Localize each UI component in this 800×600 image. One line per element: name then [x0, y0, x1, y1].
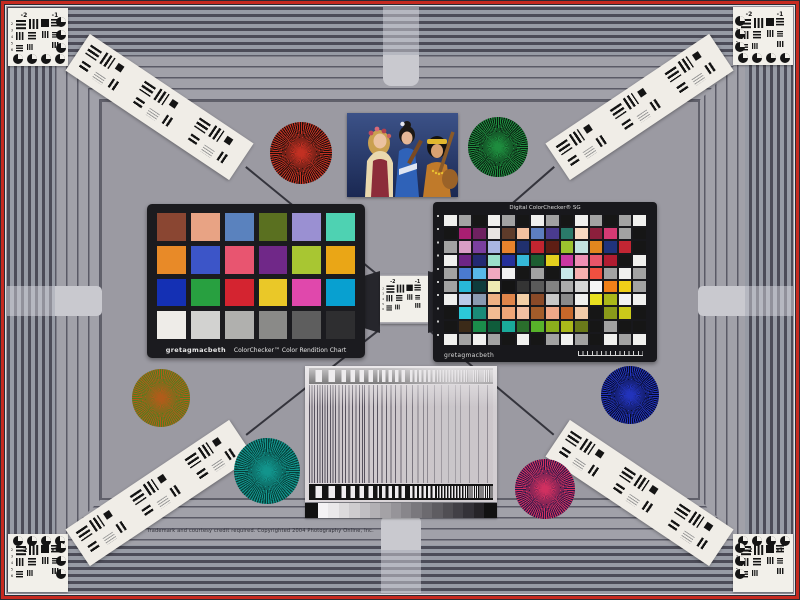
wedge-step	[484, 503, 497, 518]
wedge-step	[380, 503, 390, 518]
color-patch	[619, 215, 632, 226]
color-patch	[459, 307, 472, 318]
color-patch	[604, 334, 617, 345]
color-patch	[546, 321, 559, 332]
color-patch	[444, 215, 457, 226]
color-patch	[444, 255, 457, 266]
color-patch	[561, 268, 574, 279]
wedge-step	[339, 503, 349, 518]
siemens-star-magenta	[515, 459, 575, 519]
color-patch	[326, 246, 355, 274]
color-patch	[502, 281, 515, 292]
color-patch	[502, 241, 515, 252]
wedge-step	[349, 503, 359, 518]
alignment-tab-bottom	[381, 516, 421, 550]
color-patch	[619, 281, 632, 292]
color-patch	[546, 334, 559, 345]
color-patch	[292, 311, 321, 339]
color-patch	[531, 307, 544, 318]
color-patch	[191, 213, 220, 241]
color-patch	[517, 268, 530, 279]
colorchecker-classic-chart: gretagmacbethColorChecker™ Color Renditi…	[147, 204, 365, 358]
siemens-star-olive	[132, 369, 190, 427]
color-patch	[459, 268, 472, 279]
color-patch	[225, 279, 254, 307]
color-patch	[444, 281, 457, 292]
color-patch	[531, 268, 544, 279]
color-patch	[502, 255, 515, 266]
colorchecker-sg-brand: gretagmacbeth	[444, 352, 494, 359]
svg-text:6: 6	[382, 307, 384, 311]
svg-text:5: 5	[11, 42, 13, 46]
wedge-step	[432, 503, 442, 518]
svg-text:6: 6	[11, 48, 13, 52]
color-patch	[619, 241, 632, 252]
wedge-step	[318, 503, 328, 518]
svg-text:-1: -1	[777, 11, 784, 18]
wedge-step	[328, 503, 338, 518]
wedge-step	[474, 503, 484, 518]
wedge-step	[401, 503, 411, 518]
center-resolution-target: -2-123456	[380, 274, 428, 324]
color-patch	[531, 294, 544, 305]
color-patch	[590, 294, 603, 305]
color-patch	[633, 255, 646, 266]
color-patch	[517, 228, 530, 239]
color-patch	[225, 246, 254, 274]
color-patch	[561, 241, 574, 252]
color-patch	[619, 268, 632, 279]
color-patch	[590, 268, 603, 279]
svg-text:2: 2	[382, 286, 384, 290]
color-patch	[225, 311, 254, 339]
alignment-tab-top	[383, 55, 419, 86]
colorchecker-sg-title: Digital ColorChecker® SG	[433, 205, 657, 211]
color-patch	[575, 294, 588, 305]
color-patch	[633, 228, 646, 239]
wedge-step	[463, 503, 473, 518]
color-patch	[590, 241, 603, 252]
color-patch	[604, 255, 617, 266]
color-patch	[575, 334, 588, 345]
color-patch	[546, 294, 559, 305]
svg-text:5: 5	[382, 302, 384, 306]
svg-text:-1: -1	[52, 12, 59, 19]
color-patch	[590, 215, 603, 226]
color-patch	[546, 241, 559, 252]
color-patch	[473, 281, 486, 292]
color-patch	[259, 279, 288, 307]
studio-portrait-photo	[347, 113, 458, 197]
color-patch	[473, 215, 486, 226]
test-chart-stage: -2-123456 -2-123456 -2-123456 -2-123456	[0, 0, 800, 600]
registration-card-bottom-right: -2-123456	[733, 534, 793, 592]
color-patch	[517, 294, 530, 305]
color-patch	[575, 268, 588, 279]
color-patch	[531, 321, 544, 332]
wedge-step	[411, 503, 421, 518]
alignment-tab-right	[698, 286, 745, 316]
color-patch	[459, 215, 472, 226]
svg-text:2: 2	[11, 548, 13, 552]
color-patch	[157, 279, 186, 307]
color-patch	[619, 307, 632, 318]
color-patch	[575, 228, 588, 239]
registration-card-bottom-left: -2-123456	[8, 534, 68, 592]
alignment-tab-left-ghost	[7, 286, 57, 316]
wedge-step	[453, 503, 463, 518]
color-patch	[590, 255, 603, 266]
color-patch	[604, 307, 617, 318]
sweep-bars-bottom	[309, 484, 493, 500]
colorchecker-sg-grid	[444, 215, 646, 345]
colorchecker-classic-grid	[157, 213, 355, 339]
color-patch	[575, 307, 588, 318]
color-patch	[502, 321, 515, 332]
colorchecker-classic-label: gretagmacbethColorChecker™ Color Renditi…	[147, 346, 365, 354]
color-patch	[575, 321, 588, 332]
color-patch	[633, 307, 646, 318]
color-patch	[590, 307, 603, 318]
color-patch	[604, 215, 617, 226]
color-patch	[561, 215, 574, 226]
svg-text:6: 6	[11, 574, 13, 578]
color-patch	[488, 228, 501, 239]
color-patch	[191, 311, 220, 339]
siemens-star-blue	[601, 366, 659, 424]
color-patch	[473, 334, 486, 345]
color-patch	[633, 321, 646, 332]
color-patch	[473, 255, 486, 266]
color-patch	[191, 246, 220, 274]
color-patch	[517, 255, 530, 266]
svg-text:-2: -2	[21, 12, 28, 19]
color-patch	[191, 279, 220, 307]
color-patch	[459, 241, 472, 252]
portrait-illustration	[347, 113, 458, 197]
color-patch	[619, 228, 632, 239]
color-patch	[546, 307, 559, 318]
color-patch	[604, 228, 617, 239]
colorchecker-sg-chart: Digital ColorChecker® SG gretagmacbeth	[433, 202, 657, 362]
color-patch	[604, 281, 617, 292]
color-patch	[488, 255, 501, 266]
color-patch	[633, 268, 646, 279]
color-patch	[546, 281, 559, 292]
color-patch	[633, 215, 646, 226]
color-patch	[561, 228, 574, 239]
color-patch	[619, 334, 632, 345]
color-patch	[326, 279, 355, 307]
color-patch	[517, 241, 530, 252]
registration-card-top-left: -2-123456	[8, 8, 68, 66]
colorchecker-sg-row-ticks	[437, 215, 439, 345]
color-patch	[502, 334, 515, 345]
color-patch	[575, 281, 588, 292]
siemens-star-green	[468, 117, 528, 177]
color-patch	[531, 281, 544, 292]
grayscale-step-wedge	[305, 503, 497, 518]
color-patch	[502, 268, 515, 279]
color-patch	[326, 311, 355, 339]
color-patch	[473, 321, 486, 332]
color-patch	[488, 307, 501, 318]
color-patch	[517, 281, 530, 292]
color-patch	[561, 307, 574, 318]
color-patch	[444, 268, 457, 279]
color-patch	[488, 294, 501, 305]
alignment-tab-bottom-ghost	[381, 548, 421, 593]
color-patch	[633, 241, 646, 252]
color-patch	[561, 255, 574, 266]
color-patch	[517, 321, 530, 332]
color-patch	[633, 334, 646, 345]
color-patch	[473, 241, 486, 252]
color-patch	[292, 279, 321, 307]
color-patch	[502, 228, 515, 239]
color-patch	[633, 294, 646, 305]
color-patch	[459, 228, 472, 239]
svg-text:-2: -2	[390, 279, 395, 285]
color-patch	[575, 241, 588, 252]
alignment-tab-right-ghost	[745, 286, 793, 316]
wedge-step	[360, 503, 370, 518]
color-patch	[517, 215, 530, 226]
siemens-star-teal	[234, 438, 300, 504]
color-patch	[531, 255, 544, 266]
chirp-soften-overlay	[305, 366, 497, 502]
color-patch	[488, 241, 501, 252]
color-patch	[473, 268, 486, 279]
color-patch	[517, 334, 530, 345]
color-patch	[619, 321, 632, 332]
alignment-tab-top-ghost	[383, 7, 419, 57]
color-patch	[502, 215, 515, 226]
wedge-step	[305, 503, 318, 518]
color-patch	[444, 307, 457, 318]
color-patch	[502, 294, 515, 305]
color-patch	[575, 215, 588, 226]
color-patch	[473, 228, 486, 239]
color-patch	[488, 321, 501, 332]
color-patch	[546, 215, 559, 226]
color-patch	[488, 215, 501, 226]
color-patch	[225, 213, 254, 241]
svg-text:-2: -2	[746, 11, 753, 18]
color-patch	[157, 213, 186, 241]
color-patch	[604, 294, 617, 305]
color-patch	[604, 241, 617, 252]
color-patch	[444, 228, 457, 239]
color-patch	[459, 334, 472, 345]
alignment-tab-left	[55, 286, 102, 316]
color-patch	[619, 294, 632, 305]
colorchecker-sg-ruler	[578, 351, 643, 356]
color-patch	[459, 321, 472, 332]
svg-text:5: 5	[11, 568, 13, 572]
svg-text:4: 4	[382, 297, 384, 301]
color-patch	[590, 281, 603, 292]
color-patch	[517, 307, 530, 318]
colorchecker-brand-text: gretagmacbeth	[166, 346, 226, 354]
color-patch	[546, 228, 559, 239]
svg-text:2: 2	[11, 22, 13, 26]
wedge-step	[370, 503, 380, 518]
color-patch	[531, 215, 544, 226]
siemens-star-red	[270, 122, 332, 184]
wedge-step	[443, 503, 453, 518]
color-patch	[259, 246, 288, 274]
color-patch	[633, 281, 646, 292]
color-patch	[604, 268, 617, 279]
color-patch	[531, 334, 544, 345]
color-patch	[619, 255, 632, 266]
color-patch	[546, 268, 559, 279]
wedge-step	[422, 503, 432, 518]
color-patch	[561, 321, 574, 332]
color-patch	[473, 294, 486, 305]
color-patch	[561, 294, 574, 305]
color-patch	[502, 307, 515, 318]
color-patch	[444, 321, 457, 332]
color-patch	[488, 268, 501, 279]
color-patch	[444, 334, 457, 345]
color-patch	[604, 321, 617, 332]
color-patch	[546, 255, 559, 266]
colorchecker-title-text: ColorChecker™ Color Rendition Chart	[234, 347, 346, 354]
color-patch	[444, 241, 457, 252]
color-patch	[157, 311, 186, 339]
color-patch	[459, 294, 472, 305]
color-patch	[292, 213, 321, 241]
registration-card-top-right: -2-123456	[733, 7, 793, 65]
color-patch	[575, 255, 588, 266]
color-patch	[259, 213, 288, 241]
credit-text: Trademark and courtesy credit required. …	[147, 528, 377, 534]
frequency-sweep-card	[305, 366, 497, 502]
color-patch	[459, 255, 472, 266]
color-patch	[157, 246, 186, 274]
wedge-step	[391, 503, 401, 518]
svg-text:3: 3	[382, 292, 384, 296]
color-patch	[590, 228, 603, 239]
color-patch	[473, 307, 486, 318]
color-patch	[292, 246, 321, 274]
color-patch	[444, 294, 457, 305]
color-patch	[531, 228, 544, 239]
color-patch	[590, 334, 603, 345]
svg-text:3: 3	[11, 29, 13, 33]
color-patch	[488, 281, 501, 292]
color-patch	[488, 334, 501, 345]
svg-text:-1: -1	[415, 279, 420, 285]
color-patch	[459, 281, 472, 292]
color-patch	[259, 311, 288, 339]
svg-text:3: 3	[11, 555, 13, 559]
color-patch	[590, 321, 603, 332]
color-patch	[561, 334, 574, 345]
color-patch	[561, 281, 574, 292]
color-patch	[531, 241, 544, 252]
color-patch	[326, 213, 355, 241]
